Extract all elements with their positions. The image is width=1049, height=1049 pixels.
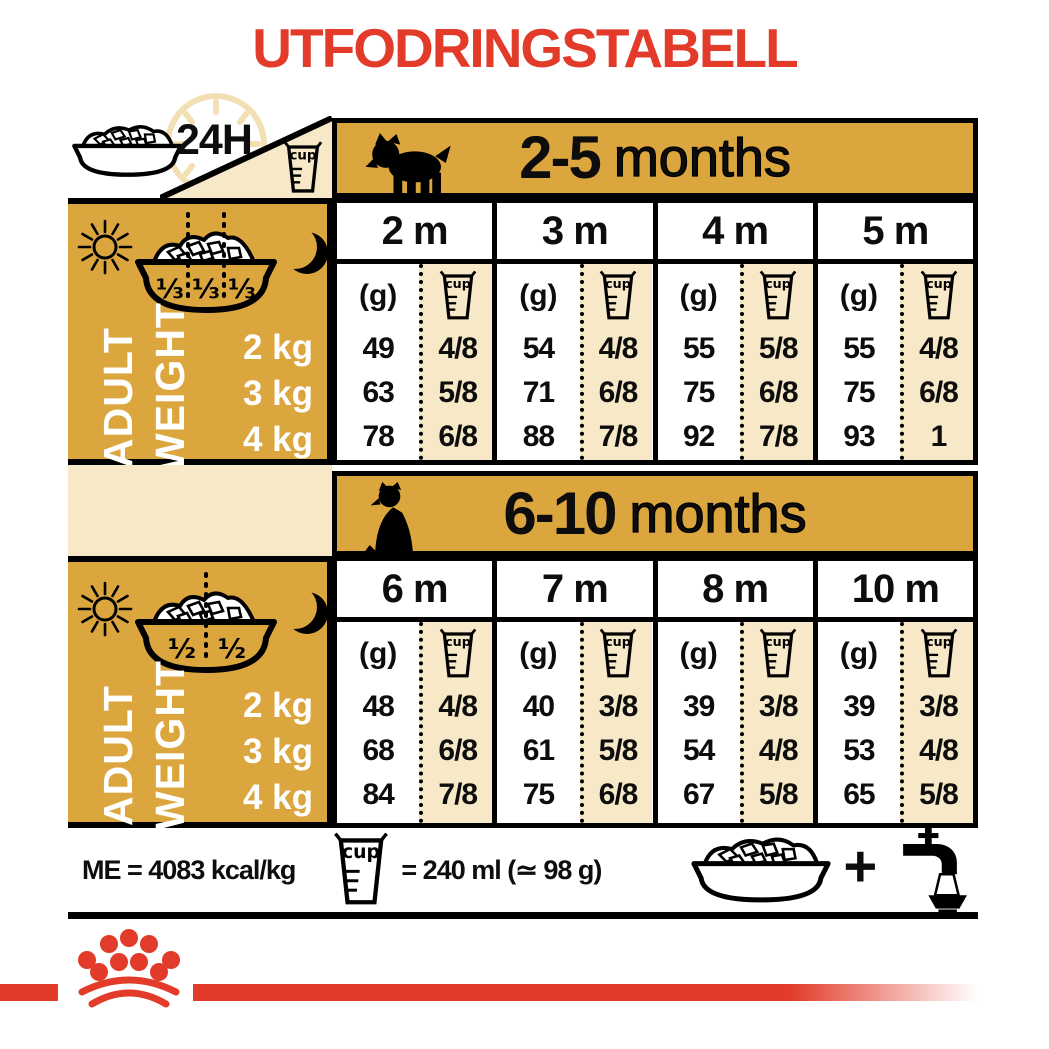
cup-icon: cup xyxy=(438,627,478,681)
gram-value: 49 xyxy=(362,327,393,371)
period-word: months xyxy=(630,487,807,541)
cup-icon: cup xyxy=(282,140,324,196)
spacer-cell xyxy=(68,465,332,556)
standing-dog-icon xyxy=(363,132,455,194)
cup-value: 4/8 xyxy=(599,327,638,371)
gram-value: 68 xyxy=(362,729,393,773)
cup-icon: cup xyxy=(919,627,959,681)
month-column-5m: 5 m (g) 55 75 93 cup 4/8 6/8 xyxy=(818,203,973,460)
fraction-label: ½ xyxy=(218,634,246,665)
month-label: 4 m xyxy=(658,203,813,259)
fraction-label: ⅓ xyxy=(192,274,220,305)
cup-value: 7/8 xyxy=(599,415,638,459)
gram-value: 65 xyxy=(843,773,874,817)
gram-value: 75 xyxy=(683,371,714,415)
cup-icon: cup xyxy=(329,831,393,909)
cup-icon: cup xyxy=(598,627,638,681)
period-bar-6-10-months: 6-10 months xyxy=(332,471,978,556)
water-tap-icon xyxy=(883,828,977,912)
cup-value: 3/8 xyxy=(759,685,798,729)
cup-value: 5/8 xyxy=(919,773,958,817)
month-column-8m: 8 m (g) 39 54 67 cup 3/8 4/8 xyxy=(658,561,813,823)
cup-icon: cup xyxy=(919,269,959,323)
sun-icon xyxy=(76,218,134,276)
royal-canin-crown-logo xyxy=(70,926,188,1014)
sun-icon xyxy=(76,580,134,638)
metabolizable-energy-label: ME = 4083 kcal/kg xyxy=(82,855,295,886)
month-column-10m: 10 m (g) 39 53 65 cup 3/8 4/8 xyxy=(818,561,973,823)
cup-icon: cup xyxy=(598,269,638,323)
gram-unit-label: (g) xyxy=(840,622,878,685)
cup-value: 4/8 xyxy=(919,327,958,371)
month-column-6m: 6 m (g) 48 68 84 cup 4/8 6/8 xyxy=(337,561,492,823)
cup-label: cup xyxy=(926,633,952,648)
gram-unit-label: (g) xyxy=(359,264,397,327)
cup-label: cup xyxy=(445,275,471,290)
gram-value: 67 xyxy=(683,773,714,817)
gram-value: 55 xyxy=(683,327,714,371)
plus-sign: + xyxy=(843,833,877,900)
section2-left-panel: ½ ½ ADULT WEIGHT 2 kg 3 kg 4 kg xyxy=(68,556,332,828)
adult-weight-label: ADULT xyxy=(98,326,139,468)
gram-unit-label: (g) xyxy=(519,264,557,327)
weight-row-label: 3 kg xyxy=(173,372,313,416)
month-label: 10 m xyxy=(818,561,973,617)
section1-left-panel: ⅓ ⅓ ⅓ ADULT WEIGHT 2 kg 3 kg 4 kg xyxy=(68,198,332,465)
gram-unit-label: (g) xyxy=(359,622,397,685)
cup-value: 6/8 xyxy=(438,415,477,459)
cup-label: cup xyxy=(765,633,791,648)
period-word: months xyxy=(614,131,791,185)
fraction-label: ⅓ xyxy=(156,274,184,305)
month-column-4m: 4 m (g) 55 75 92 cup 5/8 6/8 xyxy=(658,203,813,460)
gram-value: 61 xyxy=(523,729,554,773)
gram-value: 63 xyxy=(362,371,393,415)
adult-weight-label: ADULT xyxy=(98,684,139,826)
cup-label: cup xyxy=(926,275,952,290)
gram-value: 88 xyxy=(523,415,554,459)
cup-value: 5/8 xyxy=(599,729,638,773)
weight-row-label: 4 kg xyxy=(173,776,313,820)
weight-row-label: 4 kg xyxy=(173,418,313,462)
gram-value: 54 xyxy=(683,729,714,773)
fraction-label: ⅓ xyxy=(228,274,256,305)
cup-value: 6/8 xyxy=(919,371,958,415)
gram-value: 40 xyxy=(523,685,554,729)
cup-label: cup xyxy=(765,275,791,290)
gram-value: 39 xyxy=(843,685,874,729)
gram-value: 71 xyxy=(523,371,554,415)
moon-icon xyxy=(282,588,328,638)
cup-value: 5/8 xyxy=(759,327,798,371)
cup-value: 7/8 xyxy=(438,773,477,817)
gram-value: 92 xyxy=(683,415,714,459)
gram-unit-label: (g) xyxy=(679,264,717,327)
cup-value: 6/8 xyxy=(599,773,638,817)
gram-value: 75 xyxy=(523,773,554,817)
cup-value: 5/8 xyxy=(759,773,798,817)
month-label: 2 m xyxy=(337,203,492,259)
red-stripe xyxy=(193,984,978,1001)
gram-value: 39 xyxy=(683,685,714,729)
food-bowl-icon xyxy=(685,831,837,909)
period-bar-2-5-months: 2-5 months xyxy=(332,118,978,198)
cup-value: 6/8 xyxy=(438,729,477,773)
gram-value: 75 xyxy=(843,371,874,415)
cup-value: 6/8 xyxy=(599,371,638,415)
gram-value: 84 xyxy=(362,773,393,817)
month-column-2m: 2 m (g) 49 63 78 cup 4/8 5/8 xyxy=(337,203,492,460)
cup-equivalence-label: = 240 ml (≃ 98 g) xyxy=(401,855,601,886)
cup-value: 3/8 xyxy=(599,685,638,729)
weight-row-label: 2 kg xyxy=(173,684,313,728)
sitting-dog-icon xyxy=(361,482,427,554)
weight-row-label: 2 kg xyxy=(173,326,313,370)
cup-value: 1 xyxy=(931,415,947,459)
section1-table: 2 m (g) 49 63 78 cup 4/8 5/8 xyxy=(332,198,978,465)
gram-value: 54 xyxy=(523,327,554,371)
weight-row-label: 3 kg xyxy=(173,730,313,774)
month-label: 8 m xyxy=(658,561,813,617)
month-column-7m: 7 m (g) 40 61 75 cup 3/8 5/8 xyxy=(497,561,652,823)
cup-label: cup xyxy=(605,633,631,648)
gram-unit-label: (g) xyxy=(519,622,557,685)
legend-row: ME = 4083 kcal/kg cup = 240 ml (≃ 98 g) … xyxy=(68,828,978,912)
month-label: 6 m xyxy=(337,561,492,617)
cup-value: 4/8 xyxy=(919,729,958,773)
cup-value: 3/8 xyxy=(919,685,958,729)
feeding-table-page: UTFODRINGSTABELL 24H cup xyxy=(0,0,1049,1049)
red-stripe xyxy=(0,984,58,1001)
cup-value: 5/8 xyxy=(438,371,477,415)
period-number: 6-10 xyxy=(503,484,615,544)
gram-value: 53 xyxy=(843,729,874,773)
month-label: 7 m xyxy=(497,561,652,617)
cup-value: 4/8 xyxy=(759,729,798,773)
bottom-rule xyxy=(68,912,978,919)
cup-label: cup xyxy=(605,275,631,290)
cup-value: 4/8 xyxy=(438,327,477,371)
gram-value: 78 xyxy=(362,415,393,459)
gram-value: 55 xyxy=(843,327,874,371)
cup-value: 7/8 xyxy=(759,415,798,459)
section2-table: 6 m (g) 48 68 84 cup 4/8 6/8 xyxy=(332,556,978,828)
cup-value: 6/8 xyxy=(759,371,798,415)
month-label: 5 m xyxy=(818,203,973,259)
gram-unit-label: (g) xyxy=(679,622,717,685)
month-label: 3 m xyxy=(497,203,652,259)
cup-label: cup xyxy=(445,633,471,648)
cup-label: cup xyxy=(342,842,380,863)
cup-icon: cup xyxy=(438,269,478,323)
cup-icon: cup xyxy=(758,627,798,681)
page-title: UTFODRINGSTABELL xyxy=(0,16,1049,80)
month-column-3m: 3 m (g) 54 71 88 cup 4/8 6/8 xyxy=(497,203,652,460)
gram-value: 93 xyxy=(843,415,874,459)
moon-icon xyxy=(282,228,328,278)
period-number: 2-5 xyxy=(519,128,600,188)
gram-value: 48 xyxy=(362,685,393,729)
cup-icon: cup xyxy=(758,269,798,323)
gram-unit-label: (g) xyxy=(840,264,878,327)
cup-value: 4/8 xyxy=(438,685,477,729)
cup-label: cup xyxy=(290,148,317,163)
